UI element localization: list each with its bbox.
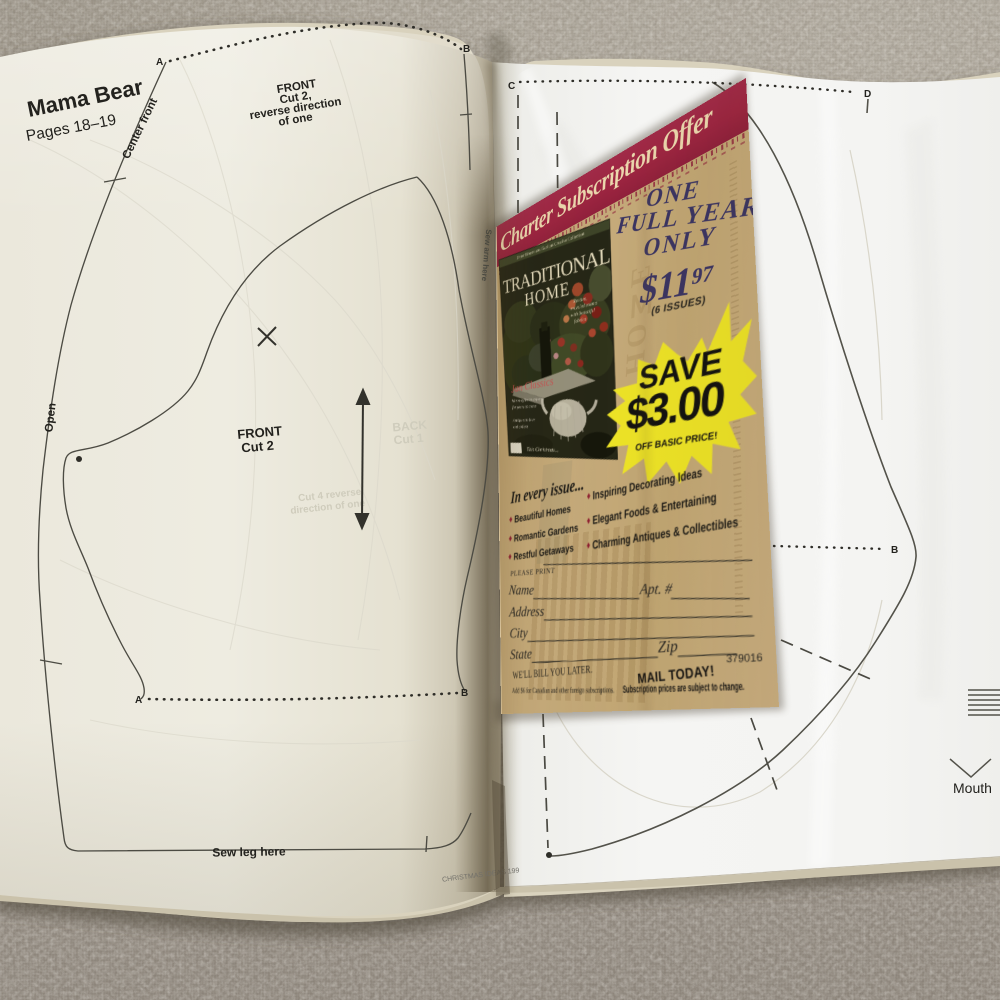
svg-text:B: B (891, 545, 898, 556)
svg-text:B: B (463, 44, 470, 55)
svg-text:Cut 2: Cut 2 (241, 438, 275, 456)
svg-text:Sew leg here: Sew leg here (212, 844, 286, 859)
svg-text:Mouth: Mouth (953, 780, 992, 796)
svg-text:D: D (864, 89, 871, 100)
svg-text:A: A (135, 695, 142, 706)
svg-text:Cut 1: Cut 1 (393, 431, 424, 448)
svg-text:B: B (461, 688, 468, 699)
svg-text:A: A (156, 57, 163, 68)
svg-text:C: C (508, 81, 515, 92)
